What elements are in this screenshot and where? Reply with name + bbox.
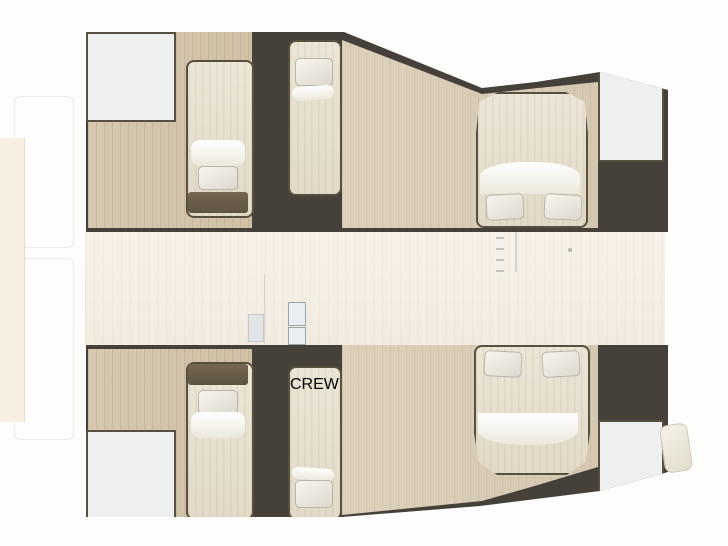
- drawer-stack: [398, 148, 428, 222]
- bed-headboard: [188, 192, 248, 213]
- vanity-top: [602, 389, 642, 411]
- deck-grate: [40, 312, 66, 348]
- bed-sheet: [292, 85, 335, 102]
- tambour-locker: [346, 348, 374, 398]
- tambour-wardrobe: [230, 493, 288, 516]
- deck-fitting: [0, 178, 9, 187]
- port-hull: [84, 26, 668, 232]
- galley-cabinet: [544, 226, 576, 274]
- wardrobe-door: [254, 74, 280, 208]
- bed-headboard: [188, 364, 248, 385]
- sofa-backrest: [120, 268, 232, 285]
- bed-sheet: [480, 162, 580, 194]
- steps: [248, 314, 264, 342]
- hanging-locker: [598, 160, 660, 232]
- tambour-locker: [85, 348, 133, 410]
- bow-locker-outline: [666, 22, 722, 52]
- tambour-locker: [434, 348, 460, 408]
- galley-cabinet: [590, 232, 612, 278]
- tambour-wardrobe: [252, 30, 286, 70]
- galley-seat: [446, 233, 466, 275]
- pillow: [483, 350, 522, 378]
- companionway-unit: [242, 272, 288, 346]
- locker-shelves: [390, 348, 426, 412]
- hull-outline-line: [474, 26, 671, 65]
- deck-grate: [40, 216, 66, 252]
- pillow: [198, 390, 238, 414]
- pillow: [541, 350, 580, 378]
- crew-cabin-label: CREW: [290, 376, 336, 476]
- cockpit-table-frame: [478, 276, 564, 336]
- crew-berth: CREW: [288, 366, 342, 520]
- pillow: [485, 193, 524, 221]
- vanity-top: [89, 36, 119, 62]
- toilet: [131, 473, 169, 510]
- port-aft-double-bed: [186, 60, 254, 218]
- saloon-table: [140, 305, 212, 324]
- unit-divider: [264, 274, 265, 344]
- drawer-column: [496, 228, 504, 274]
- fridge-handle: [515, 228, 517, 272]
- drawer-unit: [85, 196, 133, 220]
- porthole: [712, 100, 728, 116]
- vanity-top: [602, 164, 642, 186]
- tambour-locker: [432, 152, 458, 222]
- pillow: [198, 166, 238, 190]
- vanity-top: [89, 488, 119, 514]
- cabinet-handle: [568, 248, 572, 252]
- galley-counter: [468, 226, 506, 276]
- deck-grate: [46, 356, 72, 392]
- washbasin: [98, 452, 118, 482]
- deck-grate: [36, 264, 62, 300]
- bed-sheet: [478, 413, 578, 445]
- fridge: [288, 302, 306, 326]
- port-aft-bathroom: [86, 32, 176, 122]
- hatch-handle: [670, 76, 725, 84]
- wardrobe-door: [254, 356, 280, 490]
- seat-bench: [142, 186, 180, 214]
- winch-icon: [678, 291, 686, 299]
- locker-shelves: [364, 144, 398, 222]
- stbd-aft-bathroom: [86, 430, 176, 520]
- washbasin: [98, 70, 118, 100]
- deck-fitting: [2, 374, 11, 383]
- deck-cushion: [659, 422, 693, 473]
- tambour-locker: [85, 150, 133, 194]
- deck-light: [374, 272, 386, 284]
- galley-cabinet: [568, 276, 594, 324]
- seat-bench: [142, 352, 180, 378]
- pillow: [295, 58, 333, 86]
- saloon-sofa: [112, 266, 240, 346]
- freezer: [288, 327, 306, 345]
- bed-sheet: [191, 412, 245, 438]
- stbd-fwd-island-bed: [474, 345, 590, 475]
- port-single-berth: [288, 40, 342, 196]
- pillow: [543, 193, 582, 221]
- cockpit-table: [482, 280, 558, 330]
- port-fwd-island-bed: [476, 92, 588, 228]
- catamaran-deck-plan: CREW: [0, 0, 728, 546]
- hull-outline-line: [19, 0, 96, 20]
- hull-outline-line: [19, 523, 96, 546]
- deck-grate: [44, 168, 70, 204]
- pillow: [295, 480, 333, 508]
- bed-sheet: [191, 140, 245, 166]
- hanging-locker: [598, 345, 660, 419]
